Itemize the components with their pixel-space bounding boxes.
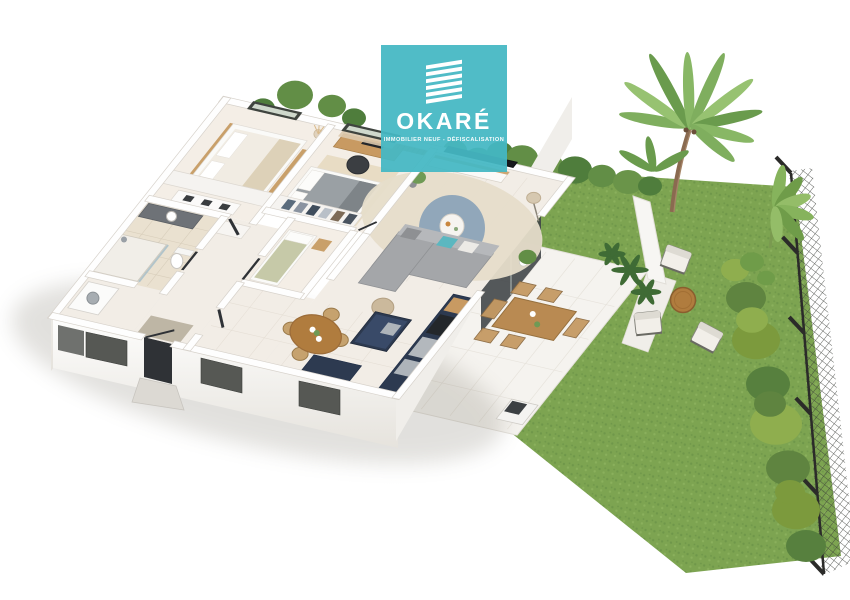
entrance-door	[144, 337, 172, 384]
toilet	[171, 253, 183, 268]
shower-head	[121, 236, 127, 242]
desk-chair	[347, 156, 369, 174]
garden-armchair	[634, 311, 662, 336]
brand-name: OKARÉ	[396, 110, 492, 133]
brand-tagline: IMMOBILIER NEUF - DÉFISCALISATION	[384, 137, 504, 143]
scene-stage: OKARÉ IMMOBILIER NEUF - DÉFISCALISATION	[0, 0, 850, 600]
brand-building-icon	[418, 59, 470, 107]
floor-lamp	[527, 192, 541, 203]
basin	[166, 211, 176, 221]
brand-logo-badge: OKARÉ IMMOBILIER NEUF - DÉFISCALISATION	[381, 45, 507, 172]
